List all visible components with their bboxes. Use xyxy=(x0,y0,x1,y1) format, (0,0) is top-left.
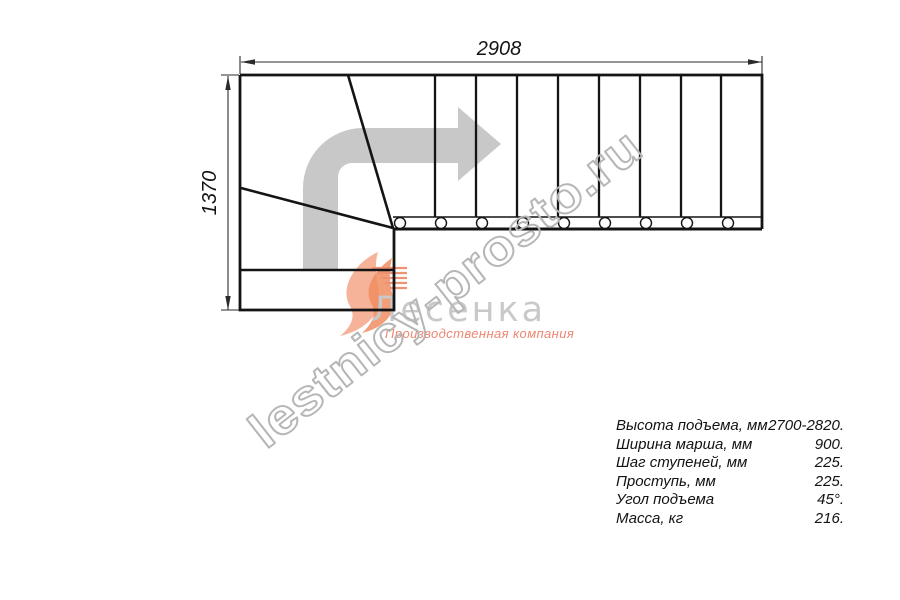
spec-value: 45°. xyxy=(817,491,844,510)
dimension-arrowhead xyxy=(241,59,255,64)
spec-label: Угол подъема xyxy=(616,491,714,510)
depth-dimension xyxy=(221,75,239,310)
dimension-arrowhead xyxy=(225,76,230,90)
dimension-arrowhead xyxy=(225,296,230,310)
bolt-circle xyxy=(723,218,734,229)
spec-value: 2700-2820. xyxy=(768,417,844,436)
spec-value: 225. xyxy=(815,473,844,492)
specs-row: Высота подъема, мм 2700-2820. xyxy=(616,417,844,436)
spec-label: Масса, кг xyxy=(616,510,683,529)
specs-table: Высота подъема, мм 2700-2820. Ширина мар… xyxy=(616,417,844,528)
spec-label: Высота подъема, мм xyxy=(616,417,768,436)
stair-drawing-page: Лесенка Производственная компания xyxy=(0,0,900,600)
spec-value: 216. xyxy=(815,510,844,529)
bolt-circle xyxy=(641,218,652,229)
specs-row: Проступь, мм 225. xyxy=(616,473,844,492)
spec-label: Шаг ступеней, мм xyxy=(616,454,747,473)
depth-dimension-label: 1370 xyxy=(199,171,221,216)
spec-value: 900. xyxy=(815,436,844,455)
spec-label: Проступь, мм xyxy=(616,473,716,492)
bolt-circle xyxy=(395,218,406,229)
bolt-circle xyxy=(682,218,693,229)
spec-value: 225. xyxy=(815,454,844,473)
specs-row: Шаг ступеней, мм 225. xyxy=(616,454,844,473)
specs-row: Масса, кг 216. xyxy=(616,510,844,529)
bolt-circle xyxy=(600,218,611,229)
width-dimension-label: 2908 xyxy=(476,38,522,60)
site-watermark-text: lestnicy-prosto.ru xyxy=(238,118,652,459)
specs-row: Ширина марша, мм 900. xyxy=(616,436,844,455)
bolt-circle xyxy=(436,218,447,229)
spec-label: Ширина марша, мм xyxy=(616,436,752,455)
specs-row: Угол подъема 45°. xyxy=(616,491,844,510)
dimension-arrowhead xyxy=(748,59,762,64)
